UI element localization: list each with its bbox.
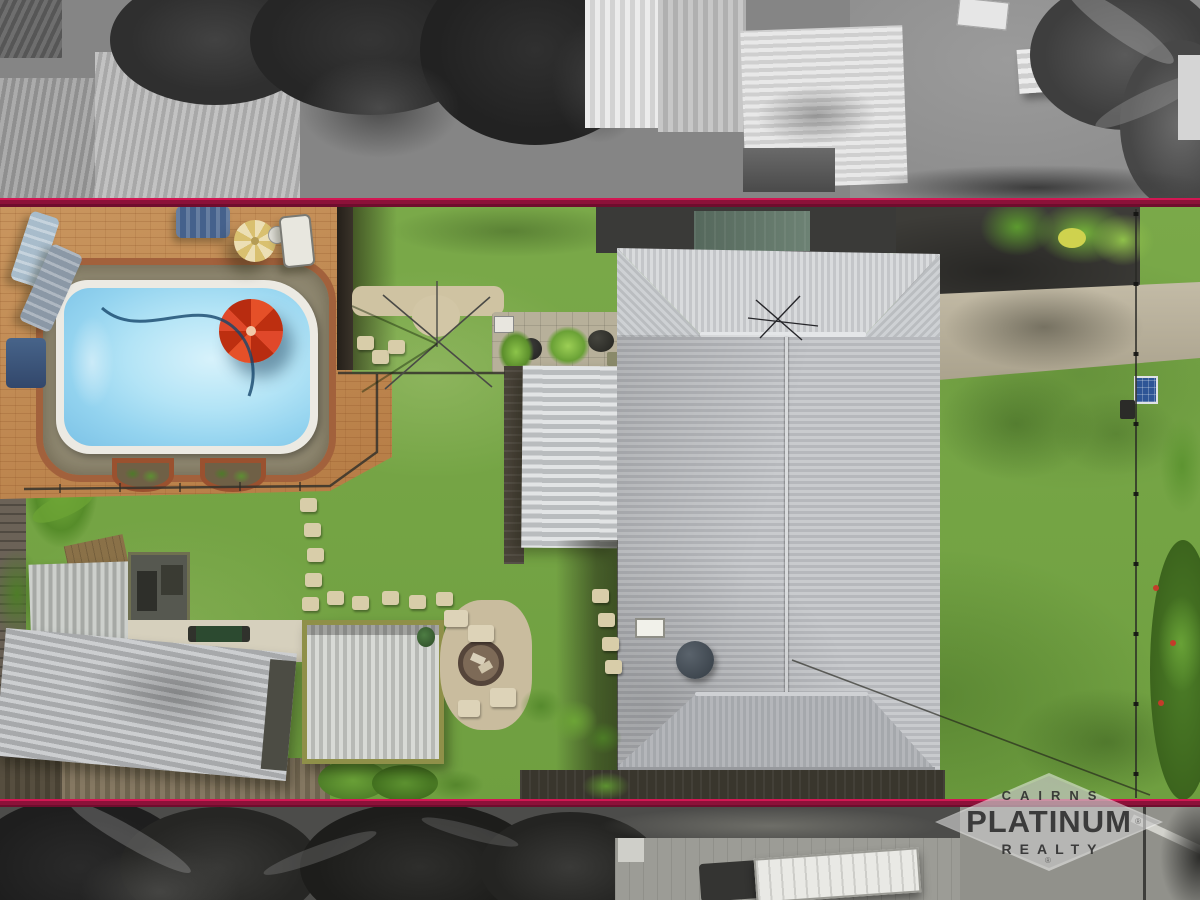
tv-antenna: [760, 296, 800, 338]
neighbour-strip-top-grayscale: [0, 0, 1200, 198]
neighbour-shed-roof-gray: [0, 78, 100, 198]
watermark-line-realty: REALTY: [994, 841, 1105, 857]
tree-canopy-gray: [300, 58, 460, 158]
truck-cab-gray: [699, 860, 762, 900]
neighbour-structure-gray: [1178, 55, 1200, 140]
neighbour-roof-white: [585, 0, 660, 128]
watermark-line-platinum: PLATINUM: [966, 804, 1132, 840]
tv-antenna: [748, 318, 818, 326]
registered-trademark-symbol: ®: [1045, 856, 1051, 865]
registered-trademark-symbol: ®: [1135, 817, 1141, 826]
clothesline-shadow: [352, 306, 437, 344]
agency-watermark: CAIRNS PLATINUM REALTY ® ®: [935, 773, 1163, 871]
pool-cleaner-hose: [102, 308, 253, 396]
neighbour-roof-gray: [658, 0, 746, 132]
pool-safety-fence: [24, 374, 377, 489]
aerial-property-photo: CAIRNS PLATINUM REALTY ® ®: [0, 0, 1200, 900]
watermark-line-cairns: CAIRNS: [993, 788, 1106, 803]
paving-slab-gray: [618, 838, 644, 862]
neighbour-roof-gray: [0, 0, 62, 58]
neighbour-chair: [957, 0, 1010, 31]
clothesline-shadow: [362, 344, 437, 392]
lot-boundary-line-top: [0, 198, 1200, 207]
neighbour-awning-gray: [743, 148, 835, 192]
